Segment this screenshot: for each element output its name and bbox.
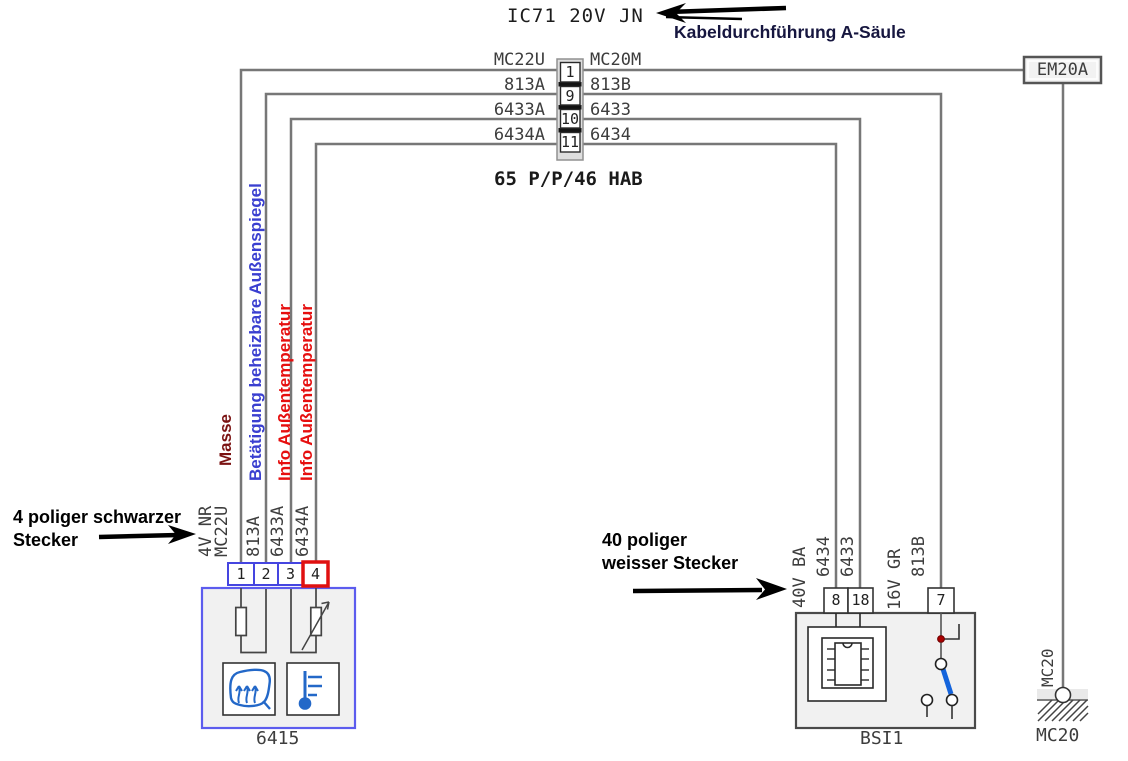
pin-6415-3: 3 xyxy=(278,565,303,584)
device-bsi1-label: BSI1 xyxy=(860,730,903,748)
junction-pin-1: 1 xyxy=(557,63,583,82)
pin-bsi-7: 7 xyxy=(928,591,954,610)
note-white-connector-line1: 40 poliger xyxy=(602,529,738,552)
signal-label-info-aussentemperatur-1: Info Außentemperatur xyxy=(276,304,293,481)
pin-6415-1: 1 xyxy=(228,565,254,584)
wire-label-6433-bottom: 6433 xyxy=(840,536,857,577)
arrow-left-icon xyxy=(656,3,786,23)
device-6415-label: 6415 xyxy=(256,730,299,748)
wire-label-6433a-bottom: 6433A xyxy=(270,506,287,557)
wire-label-813b-bottom: 813B xyxy=(911,536,928,577)
wire-label-mc22u-bottom: MC22U xyxy=(214,506,231,557)
wire-6434 xyxy=(583,144,836,588)
wire-label-left-mc22u: MC22U xyxy=(425,52,545,69)
wire-label-40v-ba: 40V BA xyxy=(792,547,809,608)
pin-bsi-8: 8 xyxy=(824,591,848,610)
diagram-title: IC71 20V JN xyxy=(507,7,644,26)
wire-label-left-813a: 813A xyxy=(425,77,545,94)
wire-label-right-6434: 6434 xyxy=(590,127,631,144)
junction-caption: 65 P/P/46 HAB xyxy=(494,170,643,189)
note-black-connector-line1: 4 poliger schwarzer xyxy=(13,506,181,529)
heated-mirror-icon xyxy=(223,663,275,715)
wire-label-right-mc20m: MC20M xyxy=(590,52,641,69)
pin-bsi-18: 18 xyxy=(848,591,873,610)
device-6415 xyxy=(202,562,355,728)
pin-6415-2: 2 xyxy=(254,565,278,584)
ground-wire-label: MC20 xyxy=(1040,648,1056,687)
junction-pin-9: 9 xyxy=(557,87,583,106)
wire-label-right-813b: 813B xyxy=(590,77,631,94)
wire-label-6434-bottom: 6434 xyxy=(816,536,833,577)
ground-icon xyxy=(1037,688,1088,722)
junction-pin-11: 11 xyxy=(557,133,583,152)
wire-label-left-6433a: 6433A xyxy=(425,102,545,119)
ic-chip-icon xyxy=(808,613,886,701)
wiring-diagram: IC71 20V JN Kabeldurchführung A-Säule MC… xyxy=(0,0,1128,761)
note-white-connector: 40 poliger weisser Stecker xyxy=(602,529,738,575)
wire-label-left-6434a: 6434A xyxy=(425,127,545,144)
junction-pin-10: 10 xyxy=(557,110,583,129)
wire-label-16v-gr: 16V GR xyxy=(887,549,904,610)
note-black-connector-line2: Stecker xyxy=(13,529,181,552)
note-black-connector: 4 poliger schwarzer Stecker xyxy=(13,506,181,552)
wire-label-right-6433: 6433 xyxy=(590,102,631,119)
note-white-connector-line2: weisser Stecker xyxy=(602,552,738,575)
callout-kabeldurchfuehrung: Kabeldurchführung A-Säule xyxy=(674,22,906,43)
wire-label-6434a-bottom: 6434A xyxy=(295,506,312,557)
wire-label-813a-bottom: 813A xyxy=(246,516,263,557)
signal-label-masse: Masse xyxy=(217,414,234,466)
pin-6415-4: 4 xyxy=(303,565,328,584)
signal-label-info-aussentemperatur-2: Info Außentemperatur xyxy=(298,304,315,481)
ground-label: MC20 xyxy=(1036,727,1079,745)
thermometer-icon xyxy=(287,663,339,715)
wire-6434a xyxy=(316,144,557,563)
signal-label-betaetigung: Betätigung beheizbare Außenspiegel xyxy=(247,183,264,481)
em20a-label: EM20A xyxy=(1025,62,1100,79)
arrow-right-icon-right-note xyxy=(633,578,787,600)
